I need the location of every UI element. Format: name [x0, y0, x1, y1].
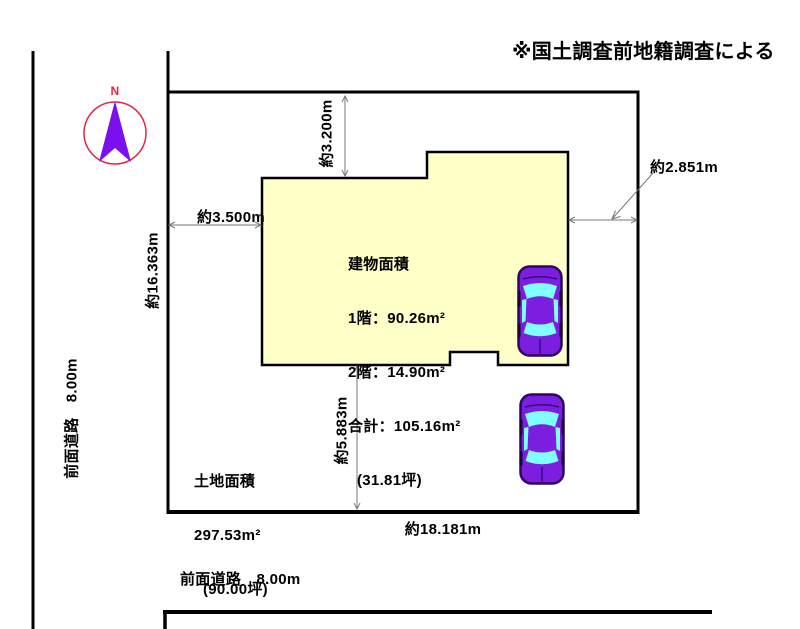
land-info-area: 297.53m²: [194, 527, 268, 545]
car-2: [520, 395, 565, 484]
building-info-floor1: 1階：90.26m²: [348, 310, 461, 328]
dim-leader-right-setback: [612, 173, 653, 219]
dim-label-top-setback: 約3.200m: [316, 89, 337, 179]
road-label-left: 前面道路 8.00m: [61, 344, 82, 494]
dim-label-left-setback: 約3.500m: [176, 206, 286, 227]
building-info: 建物面積 1階：90.26m² 2階：14.90m² 合計：105.16m² (…: [348, 220, 461, 526]
building-info-tsubo: (31.81坪): [348, 472, 461, 490]
compass-north-label: N: [107, 84, 123, 98]
road-label-bottom: 前面道路 8.00m: [180, 568, 301, 589]
car-1: [518, 267, 563, 356]
north-needle-icon: [99, 101, 131, 162]
land-info: 土地面積 297.53m² (90.00坪): [194, 437, 268, 629]
dim-label-left-side: 約16.363m: [142, 221, 163, 321]
survey-note: ※国土調査前地籍調査による: [512, 35, 775, 64]
site-plan: ※国土調査前地籍調査による N 約3.200m 約3.500m 約16.363m…: [0, 0, 800, 629]
dim-label-right-setback: 約2.851m: [650, 156, 718, 177]
building-info-title: 建物面積: [348, 256, 461, 274]
building-info-floor2: 2階：14.90m²: [348, 364, 461, 382]
land-info-title: 土地面積: [194, 473, 268, 491]
building-info-total: 合計：105.16m²: [348, 418, 461, 436]
